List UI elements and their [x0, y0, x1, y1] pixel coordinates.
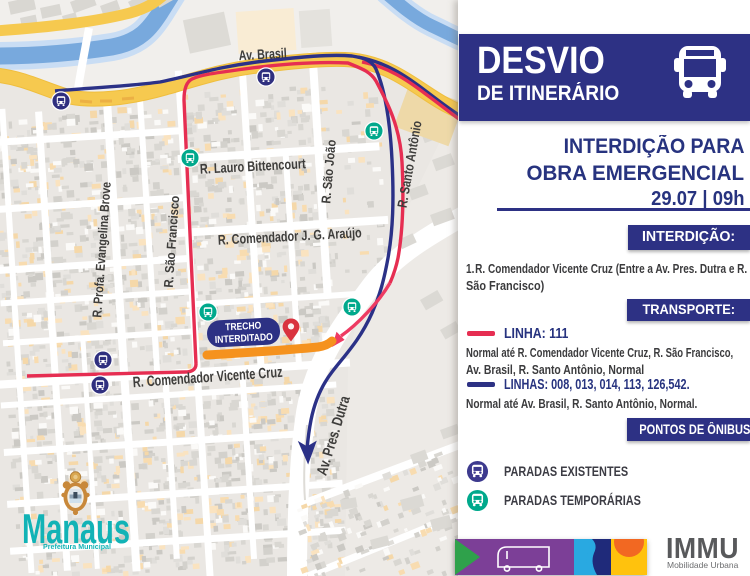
svg-text:Av. Brasil: Av. Brasil — [238, 45, 287, 63]
svg-text:TRECHO: TRECHO — [225, 321, 262, 334]
svg-text:Prefeitura Municipal: Prefeitura Municipal — [43, 542, 111, 551]
